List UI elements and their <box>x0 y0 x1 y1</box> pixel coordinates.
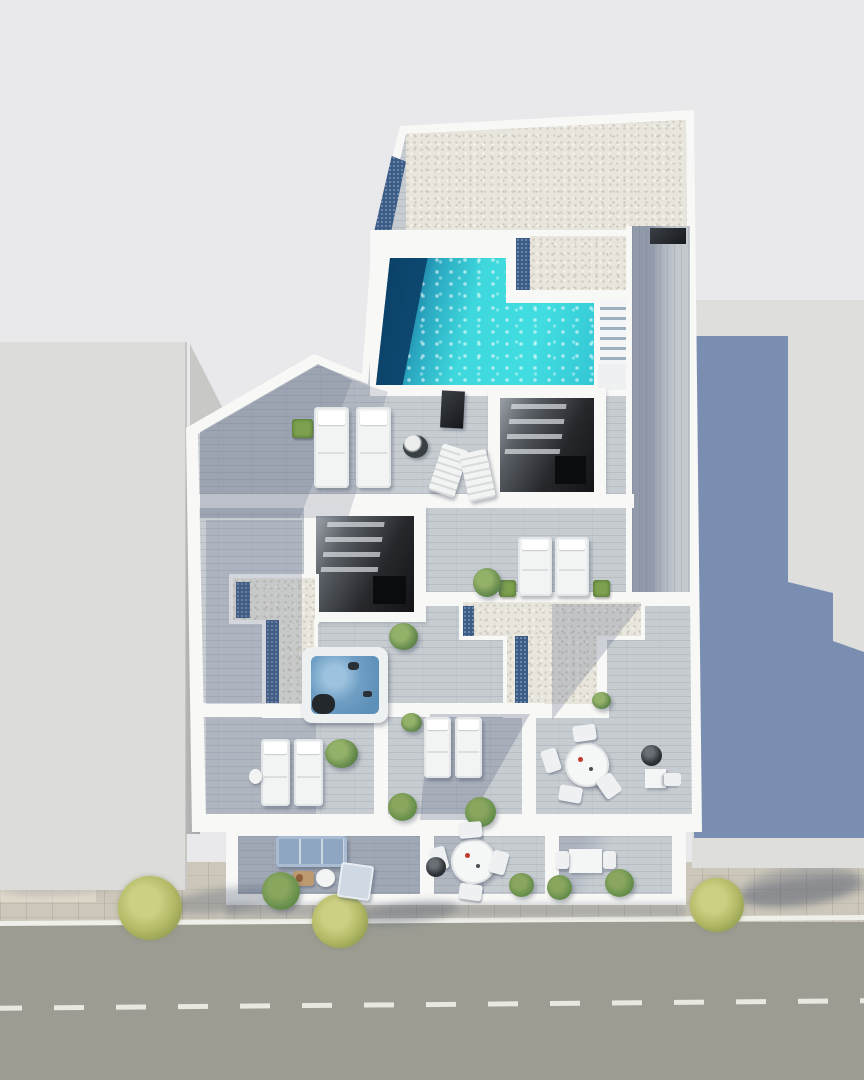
tree-shadow <box>737 870 864 912</box>
lounge-chair <box>337 862 375 901</box>
street-tree <box>690 878 744 932</box>
sun-lounger <box>294 739 323 806</box>
planter-pot <box>426 857 446 877</box>
tree-shadow <box>357 896 459 930</box>
potted-plant <box>325 739 358 768</box>
outdoor-sofa <box>276 836 347 867</box>
bistro-table <box>569 849 602 873</box>
potted-plant <box>473 568 501 597</box>
planter-pot <box>641 745 662 766</box>
dining-chair <box>458 821 482 839</box>
potted-plant <box>389 623 418 650</box>
bistro-chair <box>664 773 681 786</box>
dining-table <box>451 839 496 884</box>
sun-lounger <box>314 407 349 488</box>
shrub <box>509 873 534 897</box>
ottoman <box>403 435 428 458</box>
street-tree <box>118 876 182 940</box>
planter <box>593 580 610 597</box>
shrub <box>388 793 417 821</box>
scene-objects <box>0 0 864 1080</box>
sun-lounger <box>261 739 290 806</box>
sun-lounger <box>518 537 552 596</box>
planter <box>292 419 313 438</box>
shrub <box>605 869 634 897</box>
sun-lounger <box>424 717 451 778</box>
sun-lounger <box>455 717 482 778</box>
potted-plant <box>401 713 422 732</box>
outdoor-shower-panel <box>440 390 465 428</box>
gravel-plant <box>592 692 611 709</box>
sun-lounger <box>356 407 391 488</box>
bistro-table <box>645 769 666 788</box>
bistro-chair <box>603 851 616 869</box>
aerial-render-scene <box>0 0 864 1080</box>
dining-chair <box>458 882 483 901</box>
bistro-chair <box>556 851 569 869</box>
side-table <box>316 869 335 887</box>
dining-chair <box>558 784 583 804</box>
planter <box>499 580 516 597</box>
dining-chair <box>540 747 562 774</box>
terrace-tree <box>262 872 300 910</box>
side-table <box>249 769 262 784</box>
street-tree <box>312 894 368 948</box>
deck-chair <box>459 449 496 503</box>
sun-lounger <box>555 537 589 596</box>
shrub <box>547 875 572 900</box>
jacuzzi <box>302 647 388 723</box>
dining-chair <box>572 723 597 742</box>
